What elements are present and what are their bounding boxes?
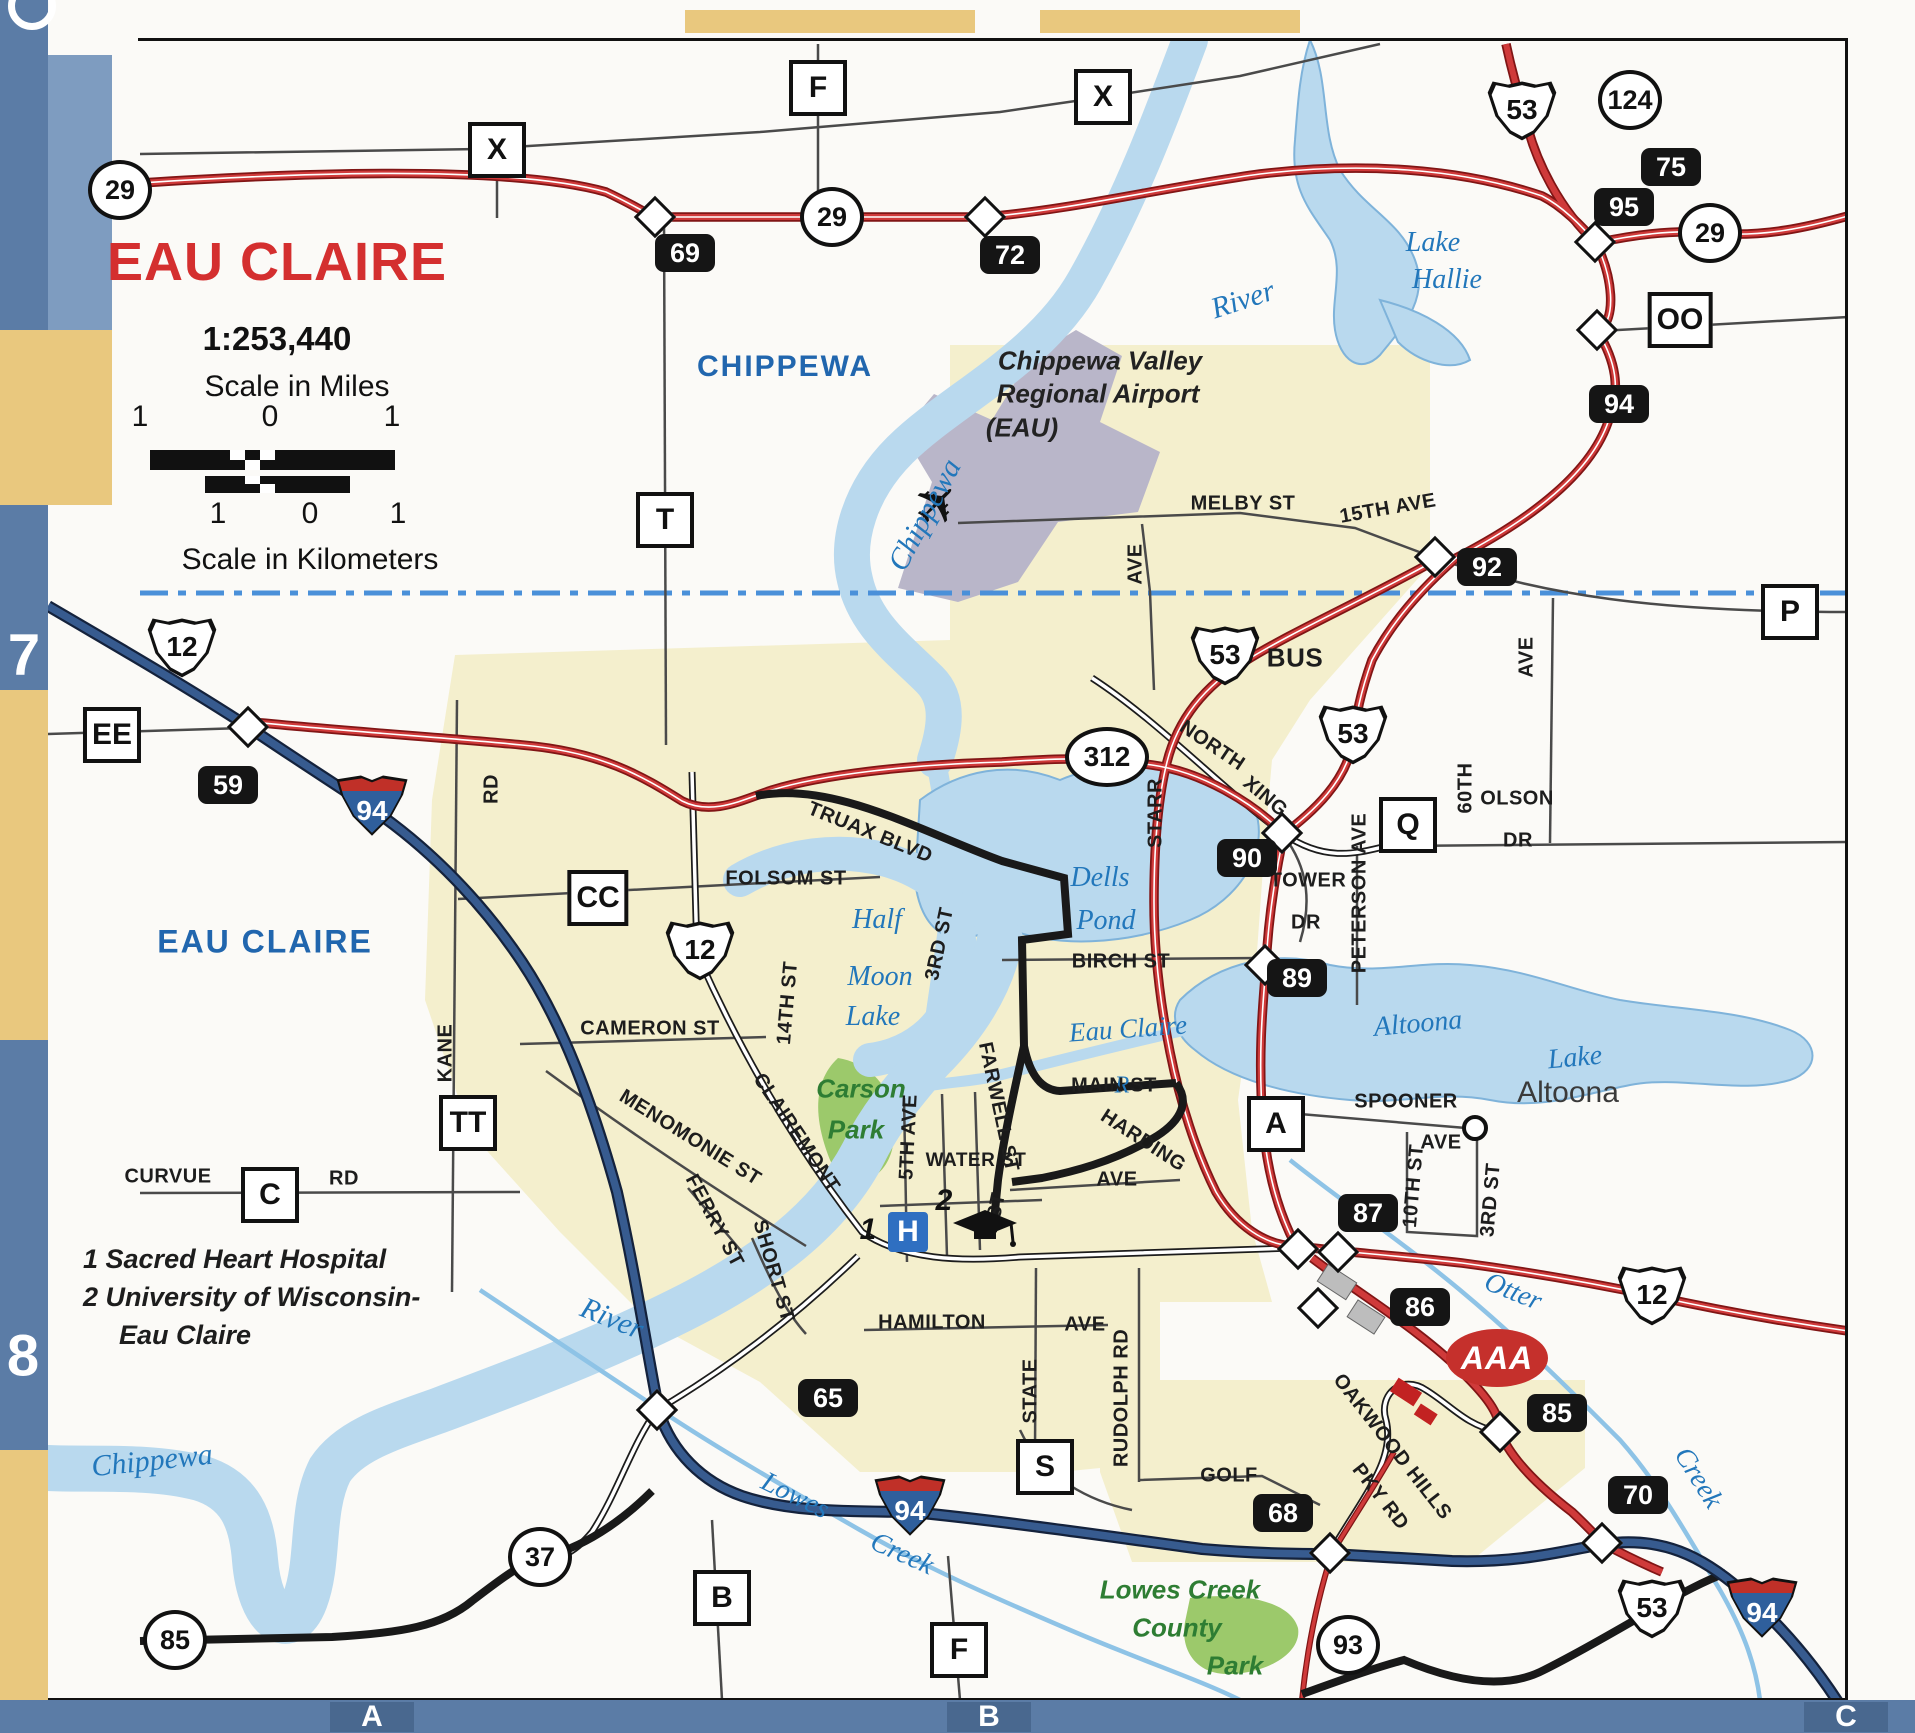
exit-marker-72: 72	[980, 236, 1040, 274]
county-road-box-x: X	[1074, 69, 1132, 125]
route-oval-312: 312	[1065, 727, 1149, 787]
street-label-rudolph-rd: RUDOLPH RD	[1111, 1329, 1134, 1467]
route-circle-93: 93	[1316, 1615, 1380, 1675]
eau-claire-road-map: ✈ H AAA 53535312121253949494292912429378…	[0, 0, 1915, 1733]
street-label-rd: RD	[329, 1168, 359, 1191]
county-road-box-f: F	[789, 60, 847, 116]
grid-row-label: 8	[7, 1323, 39, 1390]
legend-line-3: Eau Claire	[119, 1316, 420, 1354]
miles-tick: 1	[384, 400, 401, 434]
park-label-park: Park	[1207, 1651, 1263, 1682]
bottom-border-yellow	[1040, 10, 1300, 33]
water-label-dells: Dells	[1070, 862, 1129, 894]
left-border-yellow	[0, 1450, 48, 1700]
park-label-county: County	[1132, 1613, 1222, 1644]
route-shield-us-12: 12	[1617, 1264, 1687, 1326]
park-label-carson: Carson	[816, 1074, 906, 1105]
route-shield-us-53: 53	[1617, 1577, 1687, 1639]
street-label-state: STATE	[1020, 1358, 1043, 1423]
airport-label-eau: (EAU)	[986, 413, 1058, 444]
county-road-box-x: X	[468, 122, 526, 178]
scale-bars	[150, 450, 395, 493]
route-number: 94	[894, 1483, 925, 1527]
water-label-lake: Lake	[846, 1001, 900, 1033]
street-label-60th: 60TH	[1455, 763, 1478, 814]
street-label-hamilton: HAMILTON	[878, 1312, 986, 1335]
street-label-ave: AVE	[1064, 1314, 1105, 1337]
route-number: 94	[1746, 1585, 1777, 1629]
street-label-main-st: MAIN ST	[1071, 1075, 1157, 1098]
street-label-ave: AVE	[1516, 636, 1539, 677]
bottom-border-yellow	[685, 10, 975, 33]
exit-marker-85: 85	[1527, 1394, 1587, 1432]
street-label-melby-st: MELBY ST	[1191, 493, 1296, 516]
top-margin	[112, 0, 1915, 38]
left-border-yellow	[0, 330, 112, 505]
miles-tick: 1	[132, 400, 149, 434]
street-label-bus: BUS	[1267, 643, 1323, 674]
exit-marker-92: 92	[1457, 548, 1517, 586]
airport-label-chippewa-valley: Chippewa Valley	[998, 346, 1202, 377]
county-road-box-t: T	[636, 492, 694, 548]
county-road-box-ee: EE	[83, 707, 141, 763]
aaa-logo: AAA	[1446, 1329, 1548, 1387]
county-name-eau-claire: EAU CLAIRE	[157, 924, 373, 961]
route-number: 53	[1209, 639, 1240, 671]
county-road-box-f: F	[930, 1622, 988, 1678]
map-scale-ratio: 1:253,440	[203, 320, 352, 358]
map-neatline-top	[138, 38, 1848, 41]
water-label-moon: Moon	[847, 961, 912, 993]
exit-marker-94: 94	[1589, 385, 1649, 423]
exit-marker-86: 86	[1390, 1288, 1450, 1326]
hospital-icon: H	[888, 1212, 928, 1252]
route-circle-29: 29	[88, 160, 152, 220]
water-label-lake: Lake	[1546, 1040, 1603, 1077]
scale-miles-label: Scale in Miles	[204, 370, 389, 404]
poi-number-1: 1	[860, 1213, 877, 1247]
street-label-birch-st: BIRCH ST	[1072, 951, 1170, 974]
street-label-dr: DR	[1503, 830, 1533, 853]
exit-marker-70: 70	[1608, 1476, 1668, 1514]
park-label-lowes-creek: Lowes Creek	[1100, 1575, 1260, 1606]
exit-marker-90: 90	[1217, 839, 1277, 877]
route-circle-37: 37	[508, 1527, 572, 1587]
water-label-pond: Pond	[1076, 905, 1135, 937]
route-circle-85: 85	[143, 1610, 207, 1670]
street-label-dr: DR	[1291, 912, 1321, 935]
county-road-box-c: C	[241, 1167, 299, 1223]
county-road-box-p: P	[1761, 584, 1819, 640]
route-shield-us-12: 12	[147, 616, 217, 678]
route-number: 12	[166, 631, 197, 663]
map-legend: 1 Sacred Heart Hospital 2 University of …	[83, 1240, 420, 1354]
street-label-olson: OLSON	[1480, 788, 1554, 811]
graduation-cap-icon	[949, 1208, 1021, 1252]
route-number: 94	[356, 783, 387, 827]
street-label-folsom-st: FOLSOM ST	[725, 868, 846, 891]
street-label-5th-ave: 5TH AVE	[895, 1094, 922, 1181]
street-label-kane: KANE	[435, 1024, 458, 1083]
street-label-rd: RD	[481, 774, 504, 804]
street-label-tower: TOWER	[1270, 870, 1347, 893]
street-label-peterson-ave: PETERSON AVE	[1349, 813, 1372, 973]
water-label-hallie: Hallie	[1412, 264, 1482, 296]
route-shield-us-53: 53	[1318, 703, 1388, 765]
grid-col-label: A	[361, 1700, 383, 1733]
city-label-altoona: Altoona	[1517, 1076, 1619, 1110]
county-road-box-a: A	[1247, 1096, 1305, 1152]
legend-line-2: 2 University of Wisconsin-	[83, 1278, 420, 1316]
water-label-lake: Lake	[1406, 227, 1460, 259]
right-margin	[1848, 38, 1915, 1700]
park-label-park: Park	[828, 1115, 884, 1146]
county-road-box-b: B	[693, 1570, 751, 1626]
street-label-ave: AVE	[1096, 1169, 1137, 1192]
legend-line-1: 1 Sacred Heart Hospital	[83, 1240, 420, 1278]
street-label-golf: GOLF	[1200, 1465, 1258, 1488]
miles-tick: 0	[262, 400, 279, 434]
grid-col-label: B	[978, 1700, 1000, 1733]
county-road-box-oo: OO	[1648, 292, 1713, 348]
water-label-half: Half	[852, 904, 902, 936]
route-number: 53	[1506, 94, 1537, 126]
km-tick: 1	[210, 497, 227, 531]
route-circle-124: 124	[1598, 70, 1662, 130]
interstate-shield-94: 94	[335, 773, 409, 837]
grid-col-label: C	[1835, 1700, 1857, 1733]
interstate-shield-94: 94	[1725, 1575, 1799, 1639]
street-label-cameron-st: CAMERON ST	[580, 1018, 719, 1041]
county-road-box-tt: TT	[439, 1095, 497, 1151]
km-tick: 0	[302, 497, 319, 531]
exit-marker-68: 68	[1253, 1494, 1313, 1532]
route-shield-us-12: 12	[665, 919, 735, 981]
exit-marker-95: 95	[1594, 188, 1654, 226]
county-road-box-cc: CC	[567, 870, 628, 926]
exit-marker-59: 59	[198, 766, 258, 804]
route-number: 12	[1636, 1279, 1667, 1311]
city-dot	[1462, 1115, 1488, 1141]
grid-row-label: 7	[8, 622, 40, 689]
exit-marker-69: 69	[655, 234, 715, 272]
county-name-chippewa: CHIPPEWA	[697, 350, 873, 384]
county-road-box-s: S	[1016, 1439, 1074, 1495]
exit-marker-65: 65	[798, 1379, 858, 1417]
exit-marker-87: 87	[1338, 1194, 1398, 1232]
route-number: 12	[684, 934, 715, 966]
route-shield-us-53: 53	[1487, 79, 1557, 141]
route-shield-us-53: 53	[1190, 624, 1260, 686]
airport-label-regional-airport: Regional Airport	[997, 379, 1200, 410]
left-border-yellow	[0, 690, 48, 1040]
route-circle-29: 29	[800, 187, 864, 247]
km-tick: 1	[390, 497, 407, 531]
county-road-box-q: Q	[1379, 797, 1437, 853]
route-number: 53	[1636, 1592, 1667, 1624]
street-label-starr: STARR	[1145, 778, 1168, 848]
street-label-curvue: CURVUE	[124, 1166, 211, 1189]
scale-km-label: Scale in Kilometers	[182, 543, 439, 577]
exit-marker-75: 75	[1641, 148, 1701, 186]
route-number: 53	[1337, 718, 1368, 750]
route-circle-29: 29	[1678, 203, 1742, 263]
street-label-ave: AVE	[1125, 543, 1148, 584]
interstate-shield-94: 94	[873, 1473, 947, 1537]
map-title: EAU CLAIRE	[107, 231, 447, 293]
exit-marker-89: 89	[1267, 959, 1327, 997]
street-label-spooner: SPOONER	[1354, 1091, 1458, 1114]
